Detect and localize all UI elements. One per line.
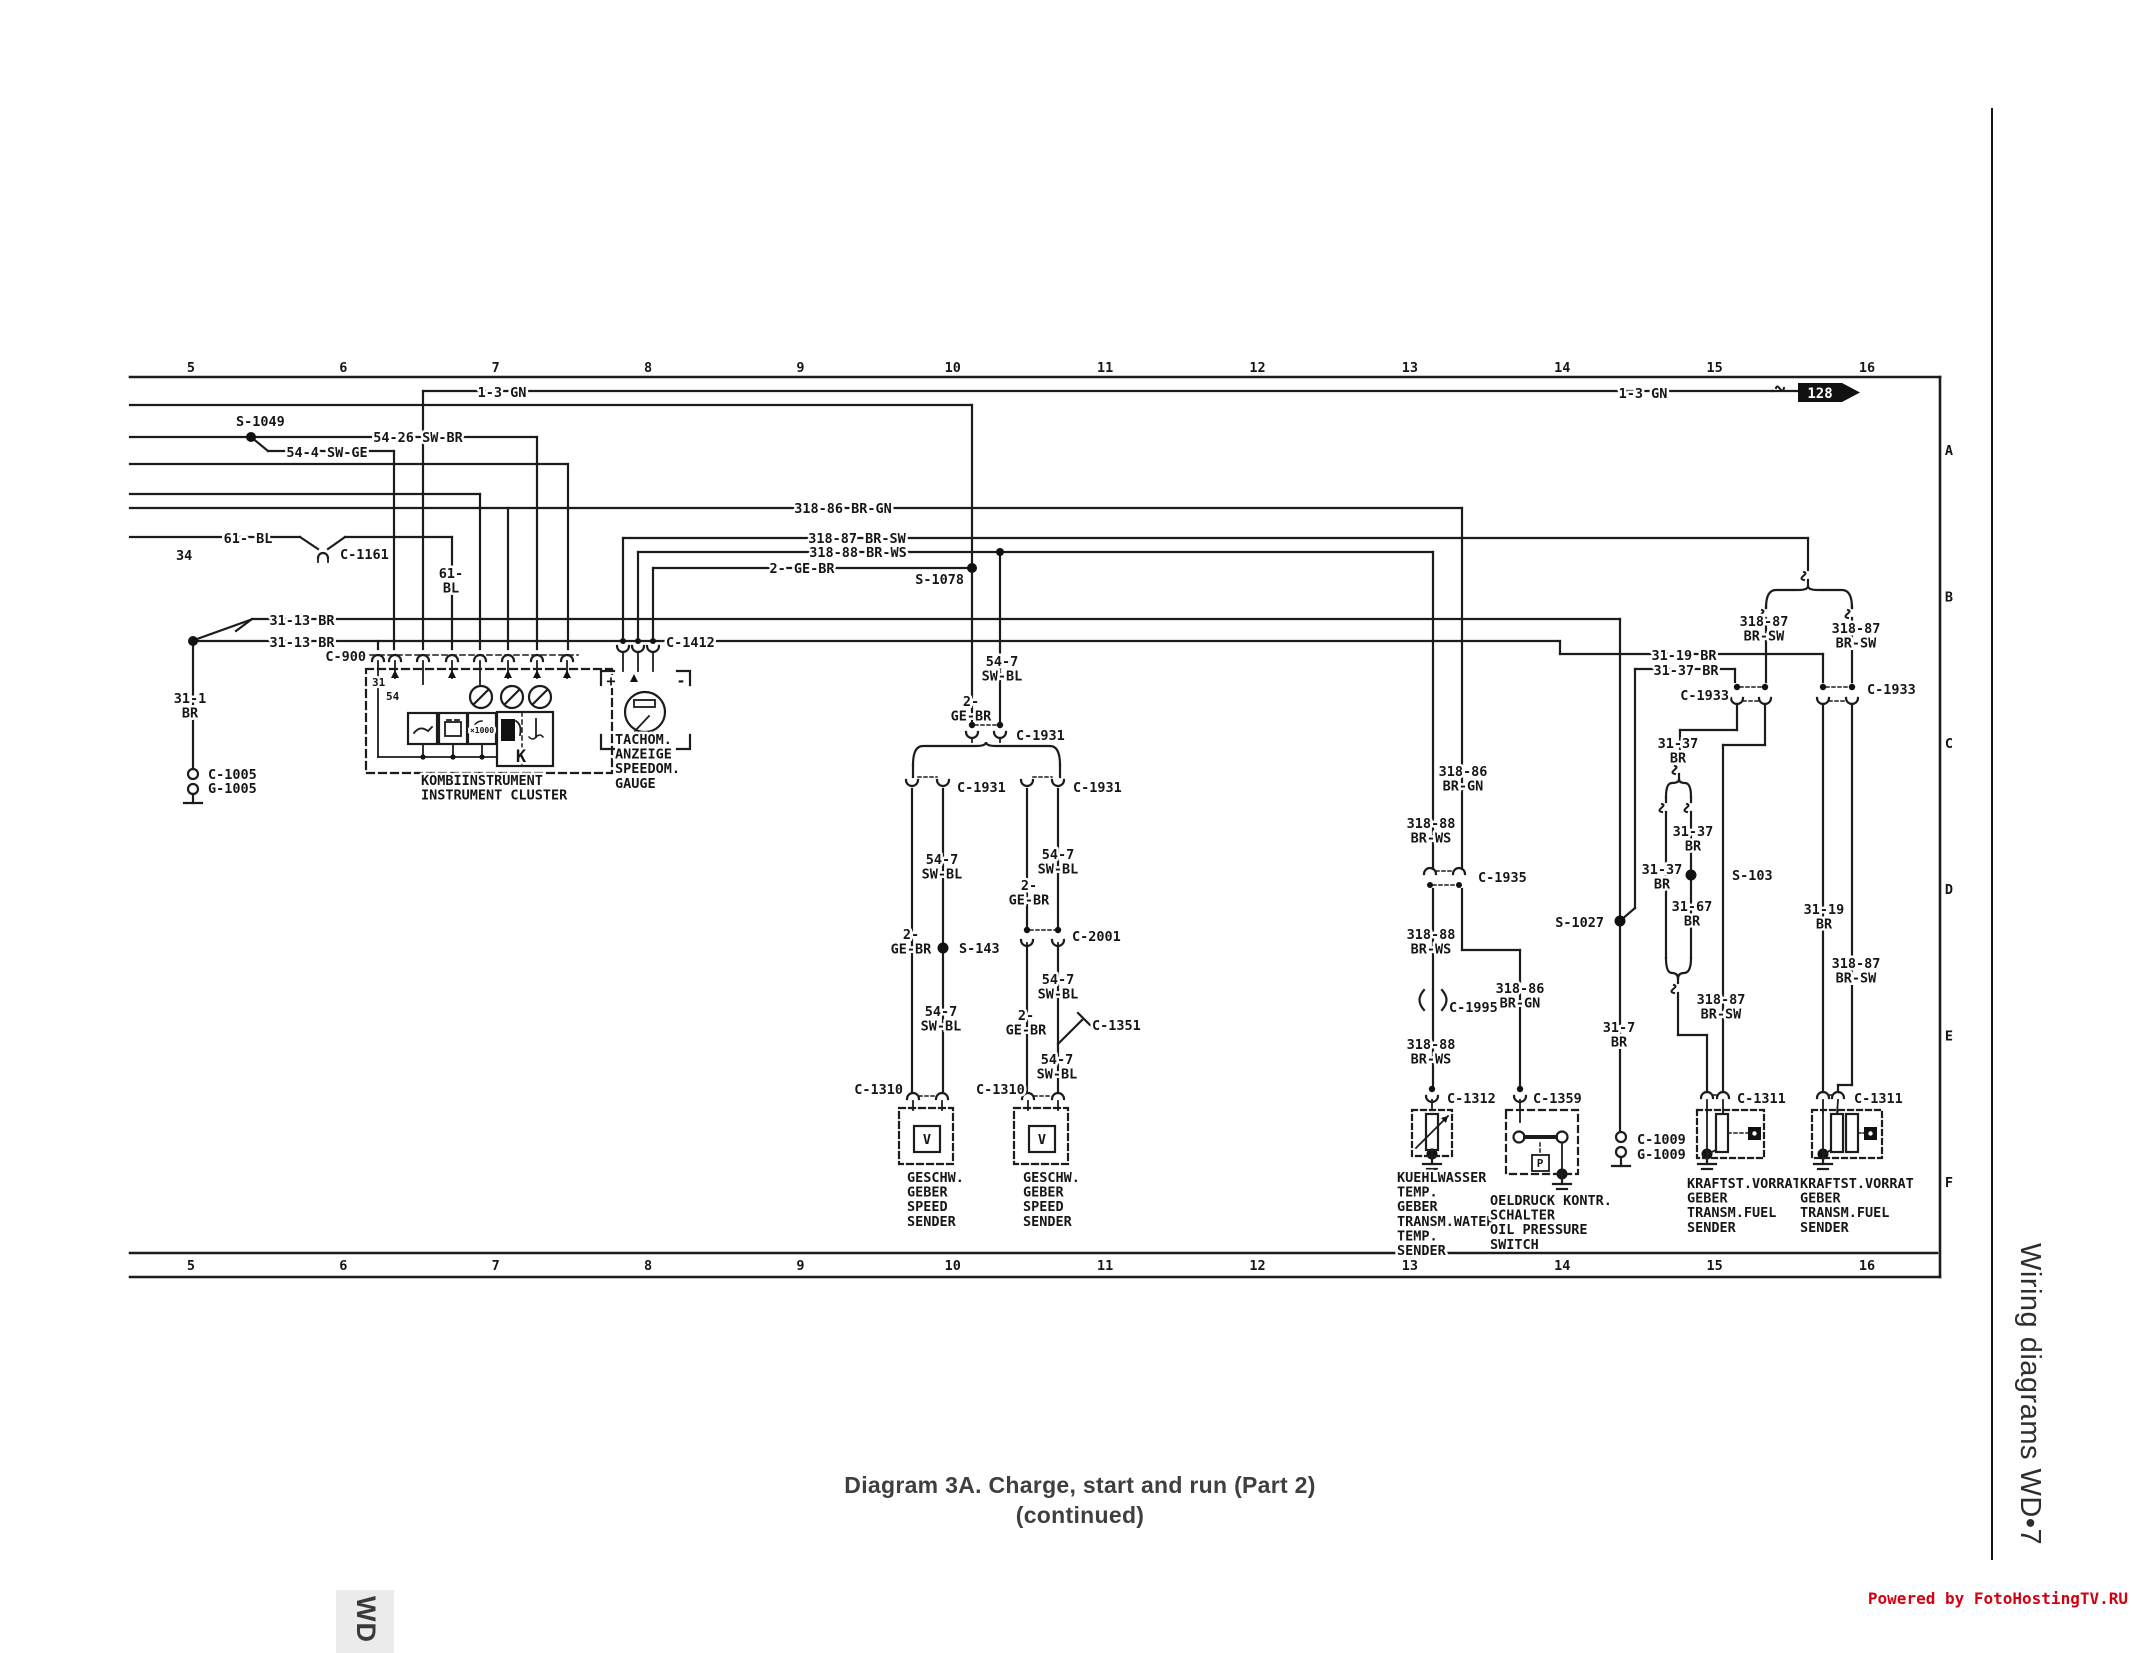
diagram-label: C-1311 <box>1737 1091 1786 1107</box>
grid-column-number-bottom: 12 <box>1249 1258 1265 1274</box>
diagram-label: OELDRUCK KONTR.SCHALTEROIL PRESSURESWITC… <box>1490 1193 1612 1253</box>
diagram-label: C-1933 <box>1867 682 1916 698</box>
diagram-label: 2-GE-BR <box>1006 1008 1048 1039</box>
diagram-label: 61- BL <box>224 531 273 547</box>
diagram-label: C-2001 <box>1072 929 1121 945</box>
diagram-label: 31-37 BR <box>1653 663 1719 679</box>
diagram-label: GESCHW.GEBERSPEEDSENDER <box>1023 1170 1080 1230</box>
watermark-credit: Powered by FotoHostingTV.RU <box>1690 1589 2128 1608</box>
diagram-label: 54-7SW-BL <box>982 654 1023 685</box>
grid-column-number-top: 10 <box>945 360 961 376</box>
diagram-label: C-1312 <box>1447 1091 1496 1107</box>
page-title: Diagram 3A. Charge, start and run (Part … <box>640 1472 1520 1499</box>
section-tab-wd: WD <box>336 1590 394 1653</box>
grid-column-number-top: 15 <box>1706 360 1722 376</box>
diagram-label: 54-7SW-BL <box>1038 972 1079 1003</box>
diagram-label: 2- GE-BR <box>769 561 835 577</box>
diagram-label: 318-86BR-GN <box>1439 764 1488 795</box>
diagram-label: 31-1BR <box>174 691 207 722</box>
diagram-label: - <box>676 672 685 690</box>
instrument-cluster <box>366 661 612 773</box>
grid-column-number-bottom: 14 <box>1554 1258 1570 1274</box>
diagram-label: S-1027 <box>1555 915 1604 931</box>
diagram-label: C-1009 <box>1637 1132 1686 1148</box>
diagram-label: C-1412 <box>666 635 715 651</box>
grid-row-letter: B <box>1945 589 1953 605</box>
wires <box>130 391 1852 1131</box>
diagram-label: C-1931 <box>1016 728 1065 744</box>
diagram-label: 318-86BR-GN <box>1496 981 1545 1012</box>
diagram-label: 318-88BR-WS <box>1407 927 1456 958</box>
diagram-label: S-1049 <box>236 414 285 430</box>
diagram-label: 54 <box>386 690 400 703</box>
diagram-label: KRAFTST.VORRATGEBERTRANSM.FUELSENDER <box>1687 1176 1801 1236</box>
grid-column-number-top: 12 <box>1249 360 1265 376</box>
diagram-labels: S-104954-26 SW-BR54-4 SW-GE1-3 GN1-3 GN6… <box>174 385 1916 1259</box>
diagram-label: 54-7SW-BL <box>922 852 963 883</box>
diagram-label: KOMBIINSTRUMENTINSTRUMENT CLUSTER <box>421 773 568 804</box>
diagram-label: 31-19 BR <box>1651 648 1717 664</box>
diagram-label: V <box>1038 1132 1046 1148</box>
grid-column-number-bottom: 11 <box>1097 1258 1113 1274</box>
diagram-label: 318-86 BR-GN <box>794 501 892 517</box>
oil-pressure-switch <box>1506 1110 1578 1189</box>
diagram-label: 31-37BR <box>1642 862 1683 893</box>
junction-dots <box>188 432 1829 1180</box>
diagram-label: + <box>606 672 615 690</box>
grid-column-number-bottom: 13 <box>1402 1258 1418 1274</box>
grid-column-number-bottom: 10 <box>945 1258 961 1274</box>
diagram-label: C-1935 <box>1478 870 1527 886</box>
diagram-label: S-1078 <box>915 572 964 588</box>
connector-symbols <box>184 553 1858 1166</box>
diagram-label: 54-7SW-BL <box>921 1004 962 1035</box>
sidebar-section-title: Wiring diagrams WD•7 <box>2008 1243 2046 1573</box>
diagram-label: C-1311 <box>1854 1091 1903 1107</box>
diagram-label: 128 <box>1807 386 1832 402</box>
diagram-label: 31-7BR <box>1603 1020 1636 1051</box>
grid-column-number-top: 13 <box>1402 360 1418 376</box>
diagram-label: 31-37BR <box>1658 736 1699 767</box>
ruler-labels: 55667788991010111112121313141415151616AB… <box>187 360 1953 1274</box>
diagram-label: C-1310 <box>976 1082 1025 1098</box>
diagram-label: 318-88 BR-WS <box>809 545 907 561</box>
harness-braces <box>913 586 1852 979</box>
fuel-sender-right <box>1812 1110 1882 1169</box>
diagram-label: 2-GE-BR <box>1009 878 1051 909</box>
grid-column-number-top: 14 <box>1554 360 1570 376</box>
diagram-label: KRAFTST.VORRATGEBERTRANSM.FUELSENDER <box>1800 1176 1914 1236</box>
diagram-label: 1-3 GN <box>478 385 527 401</box>
diagram-label: C-1359 <box>1533 1091 1582 1107</box>
diagram-label: 1-3 GN <box>1619 386 1668 402</box>
grid-column-number-bottom: 6 <box>339 1258 347 1274</box>
diagram-label: 2-GE-BR <box>891 927 933 958</box>
diagram-label: 318-87BR-SW <box>1832 956 1881 987</box>
diagram-label: 318-87BR-SW <box>1832 621 1881 652</box>
grid-row-letter: D <box>1945 882 1953 898</box>
wiring-diagram-canvas: S-104954-26 SW-BR54-4 SW-GE1-3 GN1-3 GN6… <box>0 0 2131 1653</box>
grid-row-letter: F <box>1945 1175 1953 1191</box>
grid-column-number-top: 7 <box>492 360 500 376</box>
diagram-label: 31 <box>372 676 386 689</box>
diagram-label: KUEHLWASSERTEMP.GEBERTRANSM.WATERTEMP.SE… <box>1397 1170 1495 1259</box>
diagram-label: C-1161 <box>340 547 389 563</box>
grid-column-number-top: 5 <box>187 360 195 376</box>
page-title-continued: (continued) <box>640 1502 1520 1529</box>
grid-column-number-top: 6 <box>339 360 347 376</box>
grid-column-number-top: 16 <box>1859 360 1875 376</box>
diagram-label: 2-GE-BR <box>951 694 993 725</box>
diagram-label: 318-88BR-WS <box>1407 1037 1456 1068</box>
grid-column-number-bottom: 7 <box>492 1258 500 1274</box>
diagram-label: 31-13 BR <box>269 613 335 629</box>
diagram-label: C-1310 <box>854 1082 903 1098</box>
grid-row-letter: A <box>1945 443 1953 459</box>
grid-column-number-bottom: 5 <box>187 1258 195 1274</box>
diagram-label: 318-87BR-SW <box>1697 992 1746 1023</box>
diagram-label: 54-26 SW-BR <box>373 430 463 446</box>
diagram-label: 54-7SW-BL <box>1037 1052 1078 1083</box>
grid-column-number-bottom: 15 <box>1706 1258 1722 1274</box>
diagram-label: S-103 <box>1732 868 1773 884</box>
diagram-label: S-143 <box>959 941 1000 957</box>
diagram-label: C-1995 <box>1449 1000 1498 1016</box>
diagram-label: 34 <box>176 548 192 564</box>
sidebar-divider <box>1991 108 1993 1560</box>
diagram-label: C-1931 <box>957 780 1006 796</box>
diagram-label: C-1351 <box>1092 1018 1141 1034</box>
diagram-label: C-900 <box>325 649 366 665</box>
diagram-label: V <box>923 1132 931 1148</box>
grid-column-number-bottom: 16 <box>1859 1258 1875 1274</box>
diagram-label: G-1005 <box>208 781 257 797</box>
fuel-sender-left <box>1697 1110 1764 1169</box>
diagram-label: 54-7SW-BL <box>1038 847 1079 878</box>
section-tab-label: WD <box>349 1596 380 1643</box>
grid-column-number-top: 8 <box>644 360 652 376</box>
diagram-label: K <box>516 747 527 767</box>
coolant-temp-sender <box>1412 1110 1452 1169</box>
diagram-label: 31-37BR <box>1673 824 1714 855</box>
grid-column-number-bottom: 9 <box>796 1258 804 1274</box>
diagram-label: 61-BL <box>439 566 463 597</box>
diagram-label: P <box>1537 1157 1544 1170</box>
grid-column-number-top: 11 <box>1097 360 1113 376</box>
grid-row-letter: C <box>1945 736 1953 752</box>
diagram-label: G-1009 <box>1637 1147 1686 1163</box>
diagram-label: 54-4 SW-GE <box>286 445 367 461</box>
diagram-label: C-1931 <box>1073 780 1122 796</box>
diagram-label: 318-88BR-WS <box>1407 816 1456 847</box>
scanned-wiring-diagram-page: S-104954-26 SW-BR54-4 SW-GE1-3 GN1-3 GN6… <box>0 0 2131 1653</box>
diagram-label: TACHOM.ANZEIGESPEEDOM.GAUGE <box>615 732 680 792</box>
grid-row-letter: E <box>1945 1029 1953 1045</box>
diagram-label: C-1933 <box>1680 688 1729 704</box>
grid-column-number-top: 9 <box>796 360 804 376</box>
diagram-label: GESCHW.GEBERSPEEDSENDER <box>907 1170 964 1230</box>
diagram-label: 318-87BR-SW <box>1740 614 1789 645</box>
diagram-label: 31-67BR <box>1672 899 1713 930</box>
diagram-label: 31-19BR <box>1804 902 1845 933</box>
diagram-label: ×1000 <box>470 726 494 735</box>
grid-column-number-bottom: 8 <box>644 1258 652 1274</box>
